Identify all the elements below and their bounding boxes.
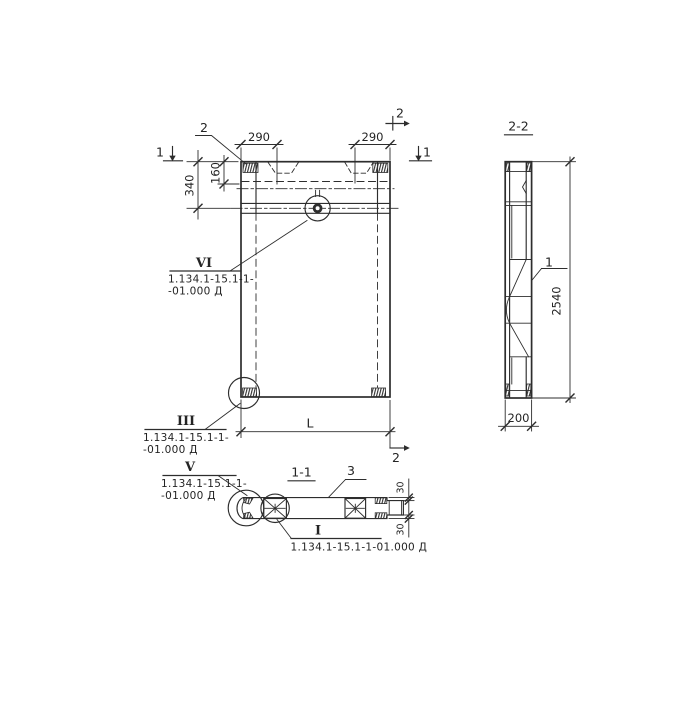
dim-200-value: 200 <box>508 411 530 425</box>
section-mark-1-right: 1 <box>410 145 432 162</box>
dim-2540: 2540 <box>532 157 576 403</box>
technical-drawing-panel: 290 290 340 160 <box>0 0 700 700</box>
panel-body-outline <box>241 162 390 397</box>
hidden-notch-right <box>345 162 374 173</box>
section-1-1-title: 1-1 <box>291 465 311 480</box>
callout-i-line1: 1.134.1-15.1-1-01.000 Д <box>291 542 428 554</box>
section-mark-2-top: 2 <box>386 106 410 131</box>
void-square-1 <box>264 499 287 519</box>
section-1-1-view: 1-1 3 <box>228 463 414 537</box>
bottom-hatch-right <box>372 388 386 397</box>
bottom-hatch-left <box>243 388 257 397</box>
callout-v-label: V <box>184 460 196 475</box>
dim-30-top-value: 30 <box>396 481 407 493</box>
callout-i-label: I <box>315 524 321 539</box>
section-2-top-label: 2 <box>396 106 404 121</box>
part-3-label: 3 <box>347 463 355 478</box>
dim-290-left-value: 290 <box>248 130 270 144</box>
dim-length-value: L <box>307 416 314 431</box>
section-2-bottom-label: 2 <box>392 450 400 465</box>
bearing-pad-hatch-left <box>243 163 258 172</box>
part-1-label: 1 <box>545 255 553 270</box>
part-1-callout: 1 <box>532 255 567 281</box>
dim-160-value: 160 <box>209 162 223 184</box>
dim-2540-value: 2540 <box>550 286 564 315</box>
callout-vi-line1: 1.134.1-15.1-1- <box>168 274 254 286</box>
detail-2-callout: 2 <box>196 120 247 164</box>
dim-200: 200 <box>499 400 539 431</box>
section-2-2-view: 2-2 1 <box>499 119 576 432</box>
callout-v: V 1.134.1-15.1-1- -01.000 Д <box>161 460 247 502</box>
callout-iii-line2: -01.000 Д <box>143 444 198 456</box>
dim-290-left: 290 <box>235 130 283 184</box>
dim-length-L: L <box>236 400 395 448</box>
left-end-hatch-top <box>244 498 254 504</box>
section-arrow-right-icon <box>404 121 410 127</box>
dim-340-value: 340 <box>183 175 197 197</box>
part-3-callout: 3 <box>329 463 367 497</box>
right-end-hatch-bottom <box>375 513 387 519</box>
callout-v-line2: -01.000 Д <box>161 490 216 502</box>
section-2-2-title: 2-2 <box>508 119 528 134</box>
section-1-right-label: 1 <box>423 145 431 160</box>
callout-vi: VI 1.134.1-15.1-1- -01.000 Д <box>168 221 307 298</box>
section-mark-1-left: 1 <box>156 145 182 162</box>
right-end-hatch-top <box>375 498 387 504</box>
section-mark-2-bottom: 2 <box>390 445 410 465</box>
section-1-left-label: 1 <box>156 145 164 160</box>
callout-iii: III 1.134.1-15.1-1- -01.000 Д <box>143 404 240 457</box>
void-square-2 <box>345 499 366 519</box>
section-arrow-right-icon <box>404 445 410 451</box>
dim-160: 160 <box>209 156 240 192</box>
bearing-pad-hatch-right <box>373 163 388 172</box>
callout-vi-line2: -01.000 Д <box>168 286 223 298</box>
detail-2-label: 2 <box>200 120 208 135</box>
hidden-notch-left <box>268 162 299 173</box>
dim-30-bottom-value: 30 <box>396 523 407 535</box>
callout-vi-label: VI <box>195 256 212 271</box>
callout-v-line1: 1.134.1-15.1-1- <box>161 478 247 490</box>
dim-290-right: 290 <box>349 130 396 183</box>
callout-iii-label: III <box>177 414 195 429</box>
dim-290-right-value: 290 <box>362 130 384 144</box>
detail-circle-end <box>228 490 264 526</box>
left-end-hatch-bottom <box>244 512 254 518</box>
callout-iii-line1: 1.134.1-15.1-1- <box>143 432 229 444</box>
